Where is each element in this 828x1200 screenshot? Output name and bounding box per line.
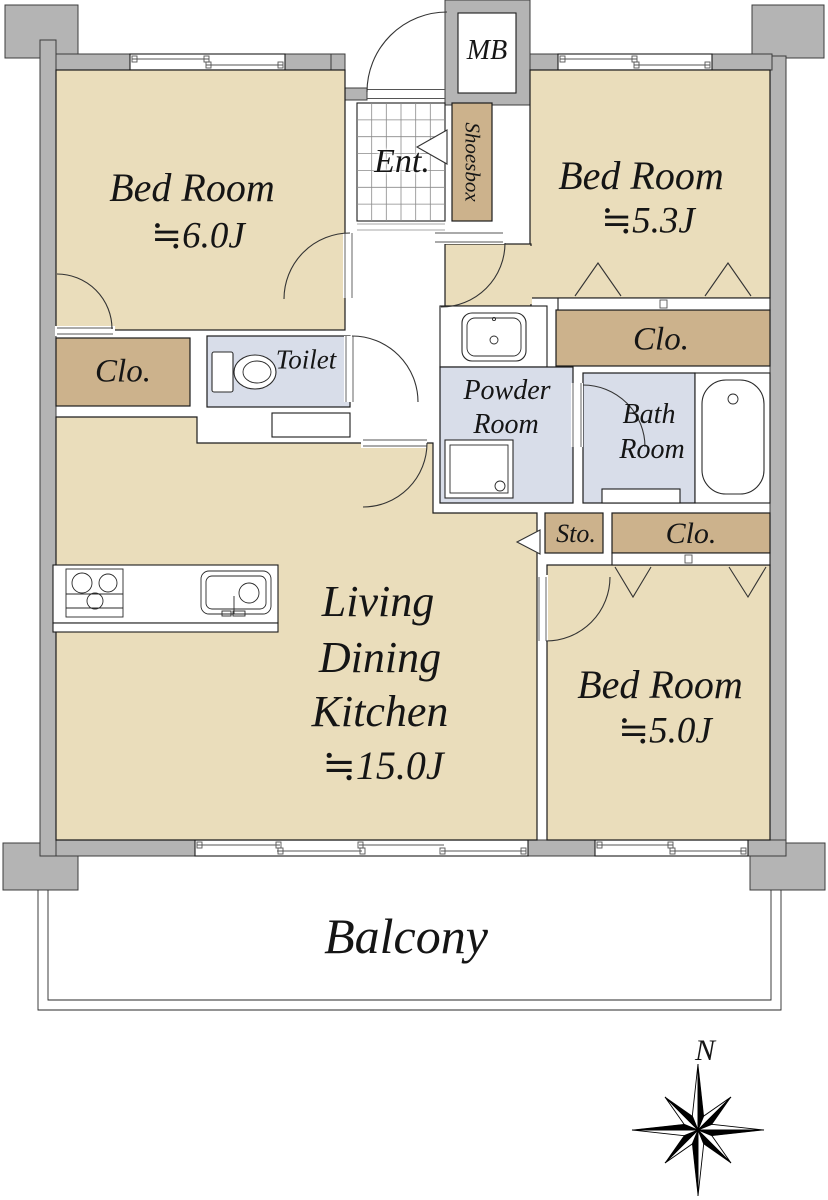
balcony-label: Balcony: [324, 911, 488, 961]
ldk-size: ≒15.0J: [322, 746, 443, 786]
window-bedroom1: [130, 54, 285, 70]
wall-top-2: [285, 54, 331, 70]
kitchen-counter: [53, 565, 278, 632]
entrance-label: Ent.: [374, 145, 430, 179]
wall-top-3: [530, 54, 558, 70]
vanity-sink-icon: [462, 313, 526, 361]
storage-label: Sto.: [556, 521, 596, 547]
wall-right: [770, 56, 786, 856]
toilet-label: Toilet: [276, 347, 337, 374]
bedroom-2-floor-join: [529, 246, 533, 304]
toilet-icon: [212, 352, 276, 392]
meter-box-label: MB: [467, 37, 507, 65]
window-ldk-sliding-door: [195, 840, 528, 856]
wall-bottom-1: [56, 840, 195, 856]
closet-lower-right-label: Clo.: [666, 519, 717, 549]
bath-step: [602, 489, 680, 503]
closet-left-label: Clo.: [95, 356, 151, 389]
wall-left: [40, 40, 56, 856]
ldk-label-1: Living: [322, 580, 434, 624]
closet-track-upper-right: [558, 298, 770, 310]
bath-room-label-1: Bath: [623, 401, 676, 429]
ldk-label-2: Dining: [319, 636, 441, 680]
bath-room-label-2: Room: [619, 436, 684, 464]
ldk-label-3: Kitchen: [312, 690, 449, 734]
door-arc-entrance: [367, 12, 447, 92]
window-bedroom3-sliding-door: [595, 840, 748, 856]
bedroom-2-name: Bed Room: [558, 156, 724, 196]
door-arc-toilet: [352, 336, 418, 402]
floor-plan: Bed Room ≒6.0J Bed Room ≒5.3J Ent. MB Sh…: [0, 0, 828, 1200]
bedroom-1-name: Bed Room: [109, 168, 275, 208]
window-bedroom2: [558, 54, 712, 70]
wall-bottom-3: [748, 840, 786, 856]
bathtub-icon: [702, 380, 764, 494]
wall-top-4: [712, 54, 772, 70]
wall-top-1: [56, 54, 130, 70]
compass-rose-icon: [632, 1064, 764, 1196]
bedroom-3-name: Bed Room: [577, 665, 743, 705]
powder-room-label-1: Powder: [463, 377, 550, 405]
bedroom-2-size: ≒5.3J: [601, 203, 695, 240]
closet-upper-right-label: Clo.: [633, 324, 689, 357]
wall-pillar-top-right: [752, 5, 824, 58]
toilet-cabinet: [272, 413, 350, 437]
wall-bottom-2: [528, 840, 595, 856]
bedroom-3-size: ≒5.0J: [618, 713, 712, 750]
washing-machine-icon: [445, 440, 513, 498]
wall-entrance-recess-h: [345, 88, 367, 100]
bedroom-1-size: ≒6.0J: [151, 218, 245, 255]
compass-north-label: N: [695, 1036, 715, 1066]
shoesbox-label: Shoesbox: [462, 122, 483, 201]
bedroom-2-floor-extension: [445, 244, 531, 306]
closet-track-lower-right: [612, 553, 770, 565]
powder-room-label-2: Room: [473, 411, 538, 439]
